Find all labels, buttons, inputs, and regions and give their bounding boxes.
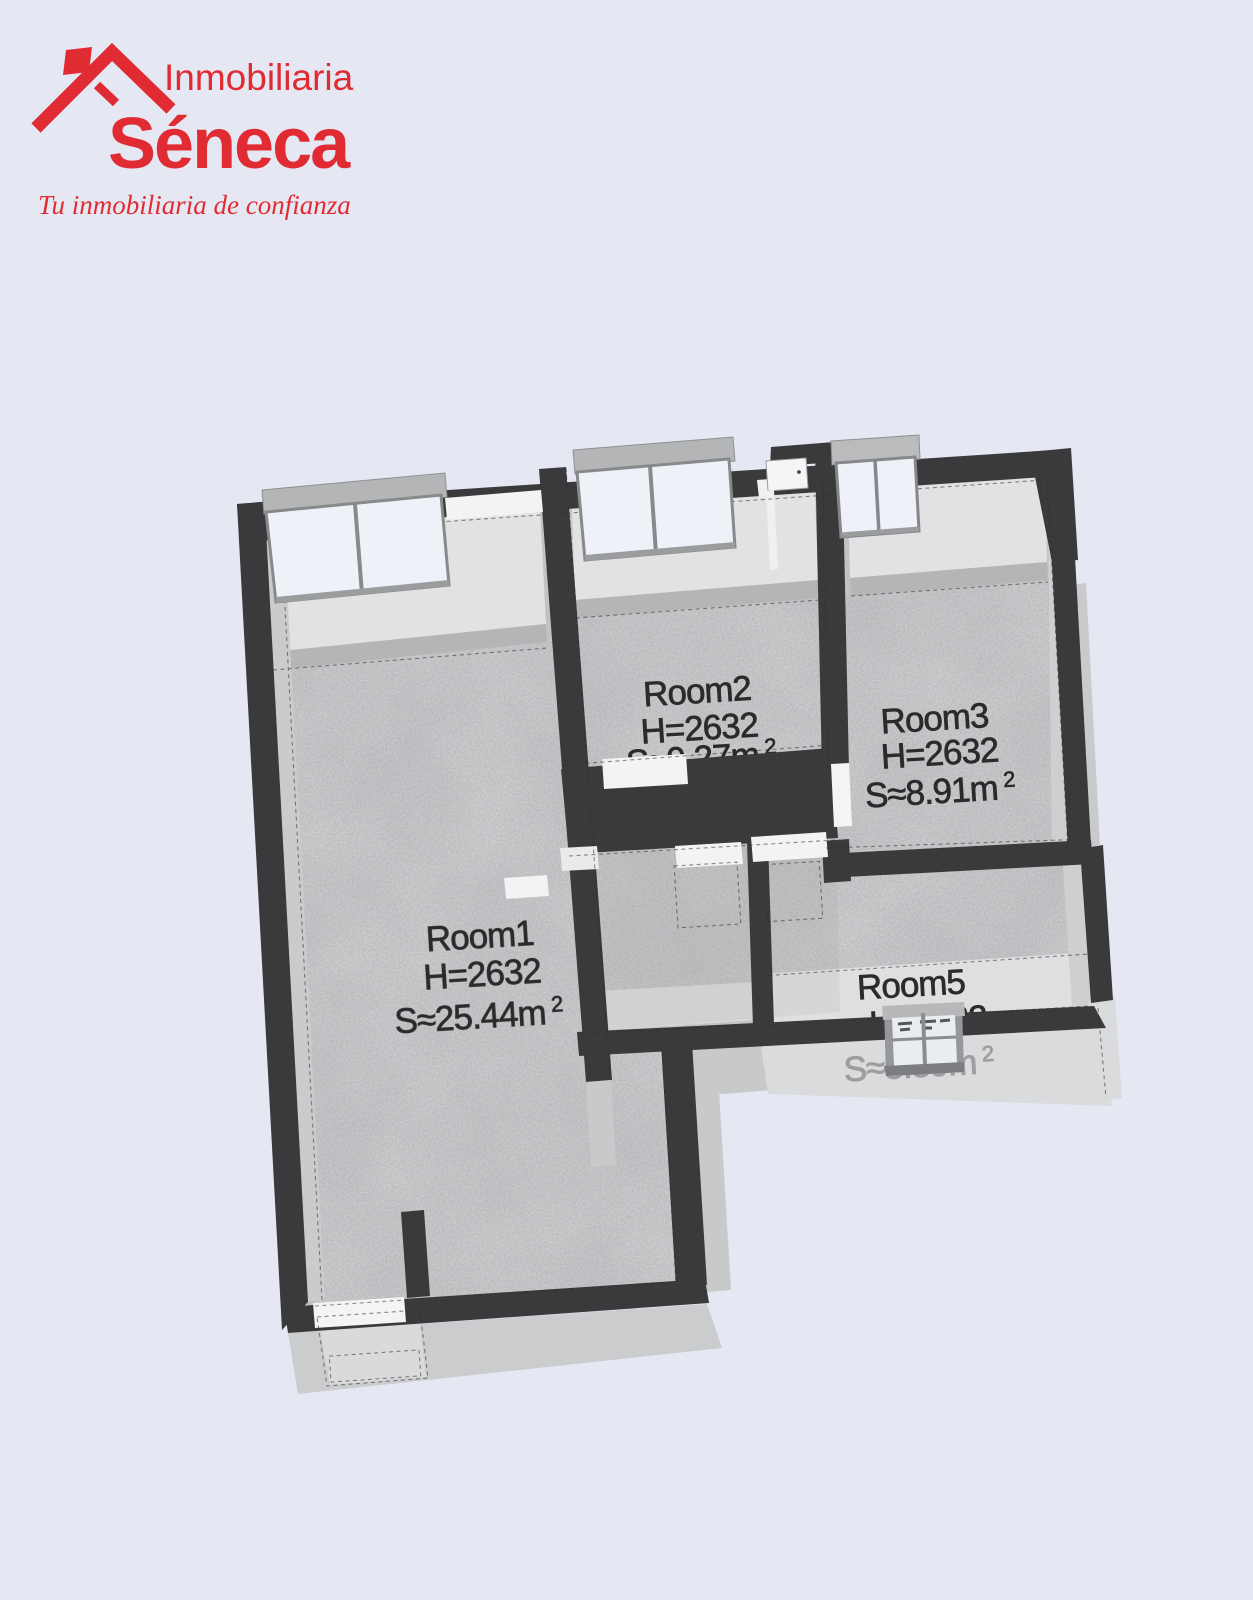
- svg-text:H=2632: H=2632: [422, 951, 542, 997]
- svg-text:Room5: Room5: [856, 962, 966, 1007]
- svg-text:Tu inmobiliaria de confianza: Tu inmobiliaria de confianza: [38, 190, 351, 220]
- svg-text:Séneca: Séneca: [108, 104, 351, 184]
- svg-text:Inmobiliaria: Inmobiliaria: [164, 57, 354, 98]
